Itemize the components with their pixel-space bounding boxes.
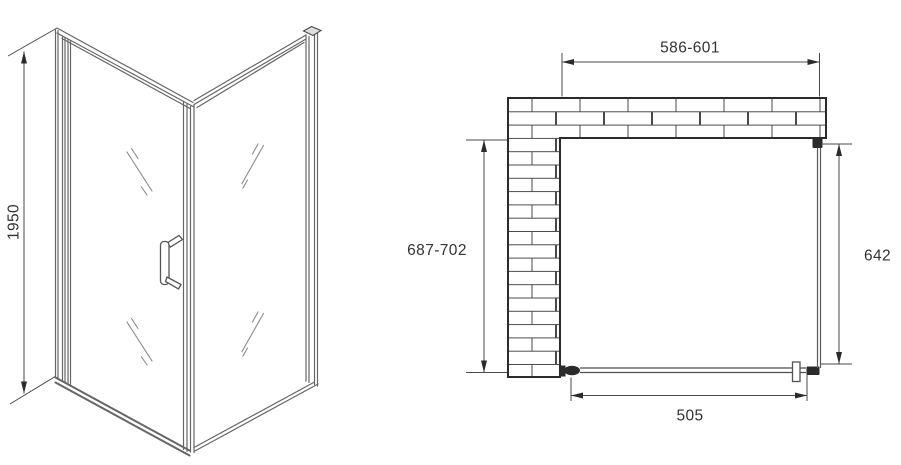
shower-enclosure-drawing: 1950	[0, 0, 901, 465]
depth-dimension-label: 687-702	[407, 242, 467, 259]
handle-plan	[793, 362, 801, 382]
width-dimension-label: 586-601	[660, 40, 720, 57]
technical-drawing-page: 1950	[0, 0, 901, 465]
door-width-dimension-label: 505	[676, 408, 703, 425]
wall-bracket	[813, 139, 823, 149]
side-panel-dimension-label: 642	[864, 248, 891, 265]
door-frame-left	[56, 29, 71, 386]
height-dimension-label: 1950	[6, 204, 23, 240]
hinge-pivot	[564, 366, 580, 375]
